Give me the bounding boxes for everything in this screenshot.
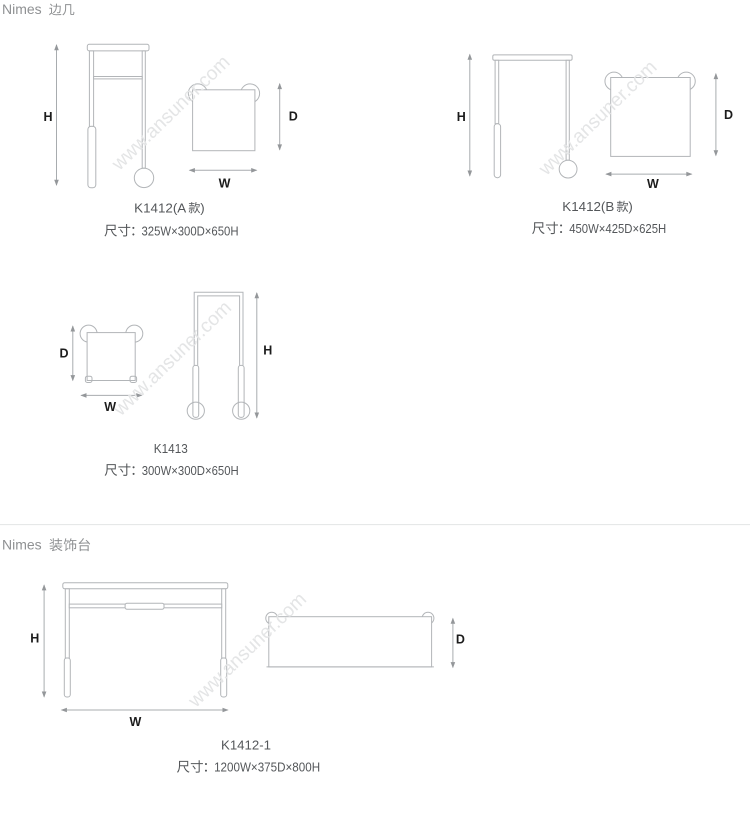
svg-text:1200W×375D×800H: 1200W×375D×800H bbox=[214, 760, 320, 775]
svg-text:325W×300D×650H: 325W×300D×650H bbox=[142, 223, 239, 238]
svg-text:): ) bbox=[628, 199, 632, 214]
svg-text:Nimes: Nimes bbox=[2, 1, 42, 17]
svg-text:H: H bbox=[44, 110, 53, 124]
svg-text:K1412(A: K1412(A bbox=[134, 200, 186, 215]
svg-text:): ) bbox=[200, 200, 204, 215]
svg-text:W: W bbox=[647, 177, 659, 191]
svg-text:300W×300D×650H: 300W×300D×650H bbox=[142, 463, 239, 478]
svg-text:H: H bbox=[30, 632, 39, 646]
svg-text:450W×425D×625H: 450W×425D×625H bbox=[569, 221, 666, 236]
svg-text:H: H bbox=[457, 110, 466, 124]
svg-text:K1412(B: K1412(B bbox=[562, 199, 614, 214]
svg-text:D: D bbox=[289, 110, 298, 124]
svg-text:K1413: K1413 bbox=[154, 441, 188, 456]
svg-text:D: D bbox=[724, 108, 733, 122]
svg-text:D: D bbox=[60, 347, 69, 361]
svg-text:D: D bbox=[456, 632, 465, 646]
svg-text:K1412-1: K1412-1 bbox=[221, 738, 271, 753]
svg-text:Nimes: Nimes bbox=[2, 537, 42, 553]
svg-text:W: W bbox=[130, 715, 142, 729]
svg-text:W: W bbox=[219, 176, 231, 190]
svg-text:H: H bbox=[263, 344, 272, 358]
